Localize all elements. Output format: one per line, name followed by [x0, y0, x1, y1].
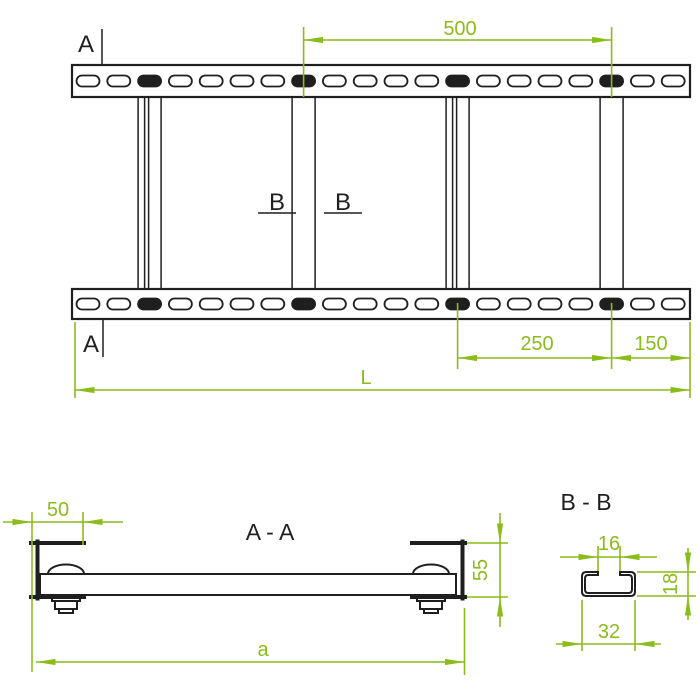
dimension-value: 32	[598, 621, 620, 643]
rail-slot	[200, 76, 223, 87]
rail-slot	[539, 76, 562, 87]
rail-slot	[261, 299, 284, 310]
rail-slot	[169, 299, 192, 310]
rail-slot	[477, 76, 500, 87]
rail-slot	[631, 76, 654, 87]
rail-slot-over-rung	[138, 76, 161, 87]
rail-slot	[354, 76, 377, 87]
rail-slot	[231, 299, 254, 310]
dimension-value: L	[360, 367, 371, 389]
left-nut-body	[55, 601, 77, 609]
dimension-value: 18	[660, 573, 682, 595]
dimension-total-length: L	[75, 322, 690, 398]
section-aa-view: A - A	[3, 499, 508, 675]
rail-slot	[477, 299, 500, 310]
section-label-b-left: B	[269, 189, 285, 216]
dimension-150: 150	[612, 322, 690, 398]
dimension-value: 55	[470, 559, 492, 581]
section-label-b-right: B	[335, 189, 351, 216]
rail-slot	[415, 299, 438, 310]
rail-slot	[107, 76, 130, 87]
rail-slot	[662, 76, 685, 87]
rail-slot-over-rung	[138, 299, 161, 310]
section-marker-b-right: B	[324, 189, 362, 216]
technical-drawing-cable-ladder: A A B B 500 250	[0, 0, 700, 700]
rail-slot	[569, 76, 592, 87]
dimension-value: 150	[634, 333, 667, 355]
rail-slot	[385, 299, 408, 310]
rail-slot	[200, 299, 223, 310]
dimension-16: 16	[560, 533, 657, 571]
rungs	[138, 97, 623, 289]
dimension-32: 32	[556, 600, 661, 651]
rail-slot	[261, 76, 284, 87]
section-bb-title: B - B	[560, 489, 611, 515]
right-bolt-head	[413, 565, 449, 575]
rail-slot	[385, 76, 408, 87]
rail-slot-over-rung	[446, 76, 469, 87]
rail-slot	[169, 76, 192, 87]
rail-slot	[631, 299, 654, 310]
rail-slot	[354, 299, 377, 310]
rail-slot	[77, 76, 100, 87]
rung-section-bar	[40, 574, 456, 595]
rail-slot	[508, 76, 531, 87]
top-side-rail	[72, 65, 690, 97]
rail-slot	[539, 299, 562, 310]
rail-slot	[77, 299, 100, 310]
section-label-a-bottom: A	[83, 331, 99, 358]
rail-slot	[323, 76, 346, 87]
dimension-value: 50	[47, 499, 69, 521]
rail-slot	[323, 299, 346, 310]
section-aa-title: A - A	[246, 519, 295, 545]
section-marker-b-left: B	[258, 189, 296, 216]
dimension-55: 55	[467, 513, 508, 627]
section-marker-a-top: A	[78, 29, 102, 65]
dimension-18: 18	[637, 548, 696, 620]
top-view: A A B B 500 250	[72, 18, 690, 398]
rail-slot-over-rung	[292, 299, 315, 310]
rail-slot	[662, 299, 685, 310]
section-marker-a-bottom: A	[83, 320, 103, 358]
dimension-value: a	[257, 639, 269, 661]
section-bb-view: B - B 16 18 32	[556, 489, 696, 651]
rung-c-profile	[582, 572, 635, 596]
rail-slot	[107, 299, 130, 310]
rail-slot	[231, 76, 254, 87]
dimension-value: 16	[598, 533, 620, 555]
rail-slot	[508, 299, 531, 310]
rail-slot	[415, 76, 438, 87]
rail-slot	[569, 299, 592, 310]
section-label-a-top: A	[78, 31, 94, 58]
left-nut-tip	[59, 609, 73, 613]
left-bolt-head	[48, 565, 84, 574]
right-nut-tip	[424, 609, 438, 613]
dimension-value: 250	[520, 333, 553, 355]
dimension-a: a	[36, 608, 465, 675]
bottom-side-rail	[72, 289, 690, 319]
right-nut-body	[420, 601, 442, 609]
dimension-value: 500	[443, 18, 476, 40]
